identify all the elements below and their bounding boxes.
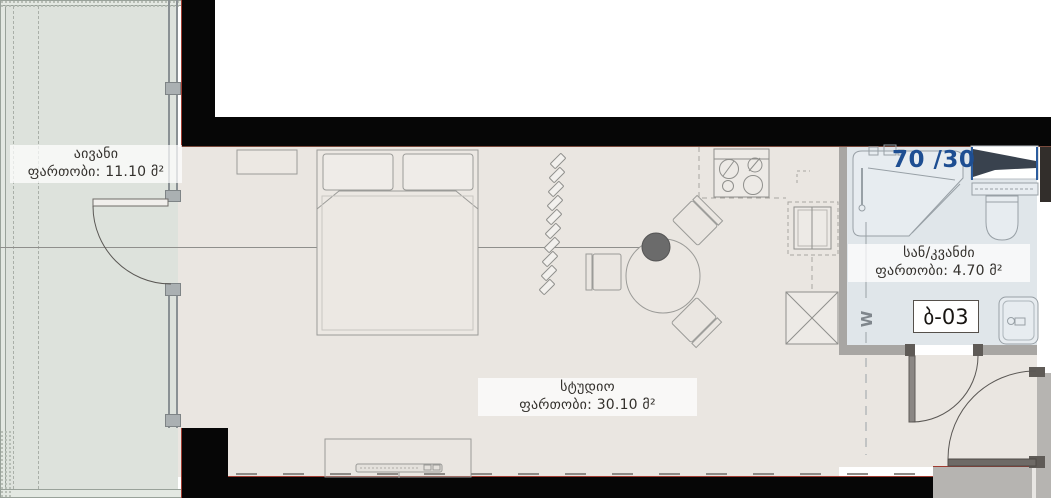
studio-label: სტუდიო ფართობი: 30.10 მ² [478, 378, 697, 416]
balcony-wall-bottom [0, 489, 182, 498]
red-line-left [181, 0, 182, 147]
studio-floor [178, 147, 839, 477]
bathroom-label: სან/კვანძი ფართობი: 4.70 მ² [848, 244, 1030, 282]
wall-bottom-left-column [182, 428, 228, 498]
washing-machine-mark: W [858, 308, 880, 330]
window-glazing-lower [168, 296, 178, 428]
entry-floor [839, 355, 1037, 467]
balcony-wall-left [0, 0, 6, 498]
door-frame-entry-2 [1029, 456, 1045, 468]
window-mullion-1 [165, 82, 181, 95]
wall-top-band [182, 117, 1051, 147]
balcony-label: აივანი ფართობი: 11.10 მ² [10, 145, 182, 183]
red-line-bottom [228, 476, 933, 477]
floor-plan: აივანი ფართობი: 11.10 მ² სტუდიო ფართობი:… [0, 0, 1051, 498]
hatch-top-left [0, 0, 182, 9]
balcony-area: ფართობი: 11.10 მ² [12, 164, 180, 182]
balcony-name: აივანი [12, 146, 180, 164]
window-mullion-4 [165, 414, 181, 427]
window-mullion-2 [165, 190, 181, 202]
bathroom-area: ფართობი: 4.70 მ² [850, 263, 1028, 281]
corridor-notch [1032, 467, 1036, 498]
door-frame-bath-1 [905, 344, 915, 356]
wall-right-lower [1037, 373, 1051, 467]
window-mullion-3 [165, 283, 181, 296]
hatch-bottom-left [0, 430, 12, 498]
wall-bottom-band [228, 477, 933, 498]
unit-number: ბ-03 [923, 305, 968, 329]
studio-name: სტუდიო [480, 379, 695, 397]
door-frame-bath-2 [973, 344, 983, 356]
shower-dimension-label: 70 /30 [892, 147, 975, 173]
unit-number-box: ბ-03 [913, 300, 979, 333]
studio-area: ფართობი: 30.10 მ² [480, 397, 695, 415]
section-reference-line [0, 247, 648, 248]
wall-bathroom-bottom-left [839, 345, 915, 355]
red-line-left-2 [181, 428, 182, 498]
wall-right-dark [1040, 147, 1051, 202]
bathroom-name: სან/კვანძი [850, 245, 1028, 263]
door-frame-entry-1 [1029, 367, 1045, 377]
wall-bathroom-bottom-right [975, 345, 1037, 355]
wall-bathroom-left [839, 147, 847, 355]
